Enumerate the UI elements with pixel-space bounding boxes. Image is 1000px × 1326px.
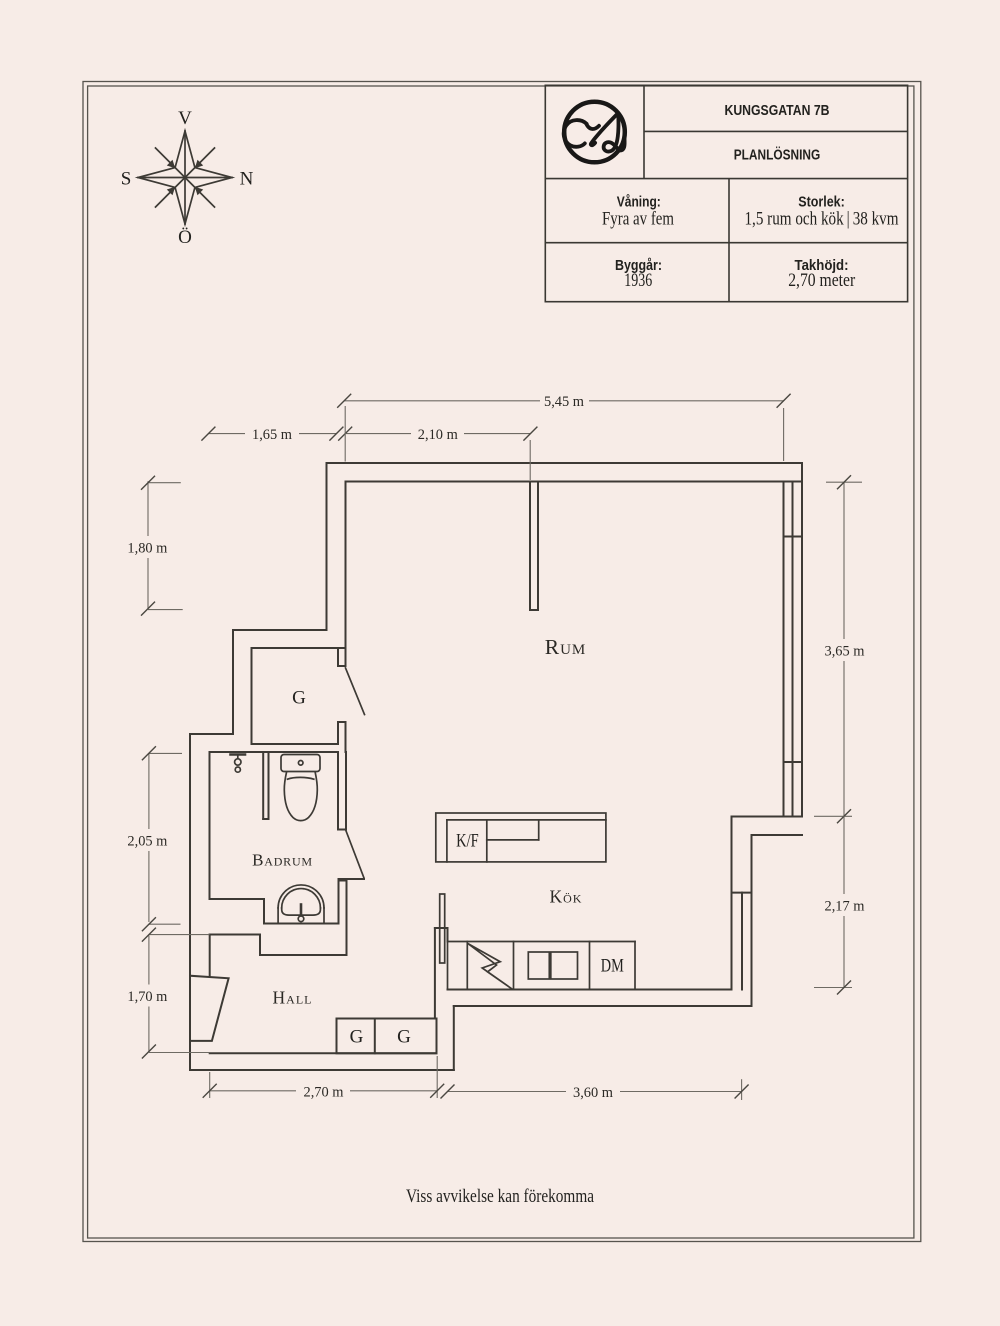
svg-text:K/F: K/F <box>456 830 479 851</box>
svg-text:2,17 m: 2,17 m <box>825 899 865 915</box>
svg-text:1,70 m: 1,70 m <box>127 989 167 1005</box>
svg-text:2,05 m: 2,05 m <box>127 833 167 849</box>
svg-text:S: S <box>121 169 132 190</box>
svg-text:PLANLÖSNING: PLANLÖSNING <box>734 147 821 164</box>
svg-text:1,65 m: 1,65 m <box>252 427 292 443</box>
svg-text:Ö: Ö <box>178 227 192 248</box>
svg-text:Viss avvikelse kan förekomma: Viss avvikelse kan förekomma <box>406 1186 594 1207</box>
svg-text:G: G <box>350 1026 364 1047</box>
svg-text:5,45 m: 5,45 m <box>544 394 584 410</box>
svg-text:Badrum: Badrum <box>252 851 313 870</box>
svg-text:3,65 m: 3,65 m <box>825 644 865 660</box>
svg-text:V: V <box>178 108 192 129</box>
svg-text:1936: 1936 <box>624 270 652 291</box>
svg-text:Hall: Hall <box>273 988 313 1008</box>
svg-text:1,80 m: 1,80 m <box>127 541 167 557</box>
svg-text:3,60 m: 3,60 m <box>573 1085 613 1101</box>
svg-text:DM: DM <box>601 956 624 977</box>
svg-text:G: G <box>397 1026 411 1047</box>
svg-text:2,10 m: 2,10 m <box>418 427 458 443</box>
svg-text:N: N <box>240 169 254 190</box>
svg-text:G: G <box>292 688 306 709</box>
svg-text:2,70 meter: 2,70 meter <box>788 270 856 291</box>
svg-text:2,70 m: 2,70 m <box>304 1084 344 1100</box>
svg-text:Kök: Kök <box>550 887 583 907</box>
svg-text:KUNGSGATAN 7B: KUNGSGATAN 7B <box>725 103 830 119</box>
svg-text:Rum: Rum <box>545 635 587 659</box>
svg-text:1,5 rum och kök | 38 kvm: 1,5 rum och kök | 38 kvm <box>745 209 899 230</box>
svg-text:Fyra av fem: Fyra av fem <box>602 209 674 230</box>
